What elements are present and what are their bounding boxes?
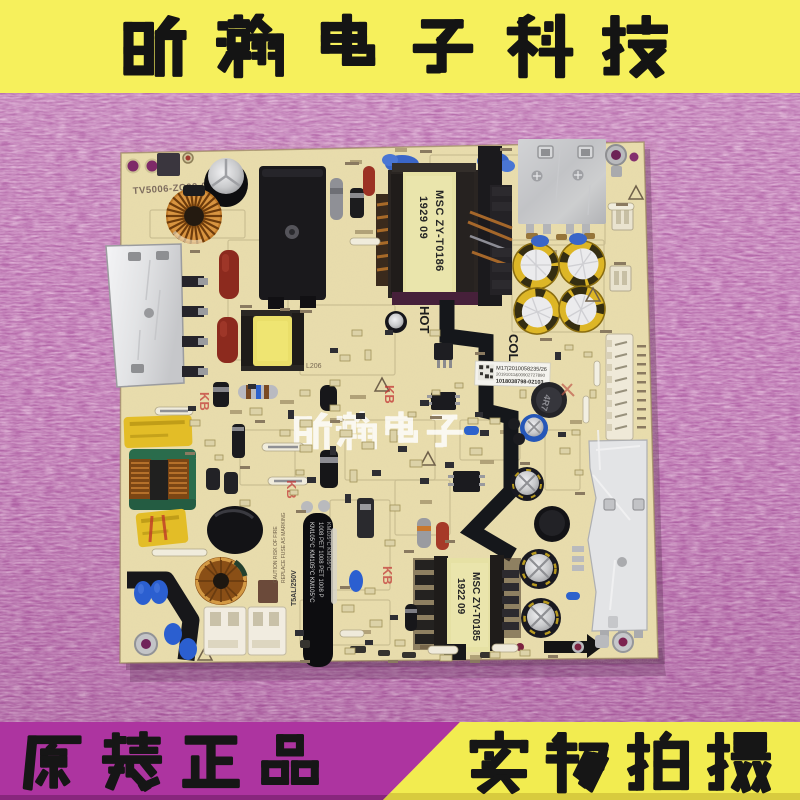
svg-text:KM105°C KM105°C KM105°C: KM105°C KM105°C KM105°C	[308, 522, 314, 603]
svg-text:MSC ZY-T0185: MSC ZY-T0185	[470, 572, 481, 641]
svg-text:T5AL/250V: T5AL/250V	[291, 570, 298, 606]
svg-text:REPLACE FUSE AS MARKING: REPLACE FUSE AS MARKING	[281, 512, 287, 583]
svg-text:KB: KB	[197, 392, 212, 411]
svg-text:KB: KB	[380, 566, 395, 585]
svg-text:L206: L206	[306, 363, 322, 370]
svg-text:HOT: HOT	[417, 306, 432, 334]
svg-text:MSC ZY-T0186: MSC ZY-T0186	[433, 190, 445, 272]
svg-text:1929 09: 1929 09	[417, 196, 429, 239]
svg-text:KM105°C KM105°C: KM105°C KM105°C	[325, 522, 331, 571]
svg-text:CAUTION RISK OF FIRE: CAUTION RISK OF FIRE	[273, 526, 279, 583]
svg-text:KB: KB	[382, 385, 397, 404]
svg-text:KB: KB	[284, 480, 299, 499]
svg-text:1922 09: 1922 09	[455, 578, 466, 615]
svg-text:1008 PET 1008 PET 1008 P: 1008 PET 1008 PET 1008 P	[317, 522, 323, 598]
svg-text:1018038798-02103: 1018038798-02103	[496, 379, 544, 386]
